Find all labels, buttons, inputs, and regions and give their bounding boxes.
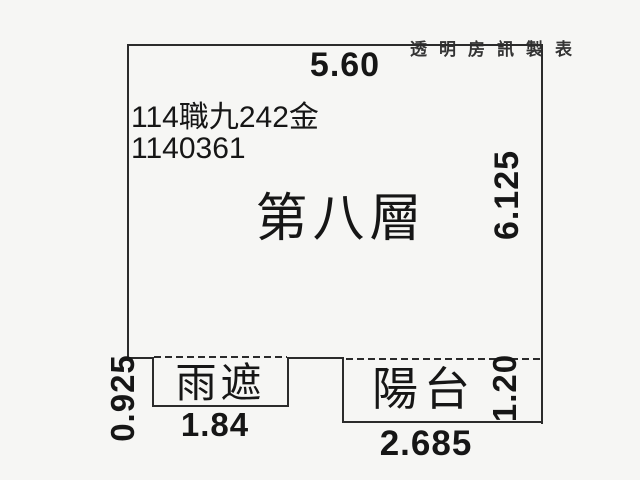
dimension-balcony-width: 2.685 (366, 424, 486, 464)
dimension-canopy-depth: 0.925 (104, 338, 138, 458)
watermark-text: 透明房訊製表 (410, 35, 584, 60)
dimension-right-height: 6.125 (488, 135, 522, 255)
plan-outline-right (541, 44, 543, 424)
dimension-top-width: 5.60 (295, 46, 395, 85)
canopy-right-line (287, 357, 289, 407)
canopy-label: 雨遮 (154, 361, 287, 405)
notch-connector-line (289, 357, 344, 359)
canopy-dashed-top-line (154, 356, 287, 358)
balcony-left-line (342, 357, 344, 423)
floor-plan-page: 透明房訊製表 5.60 114職九242金 1140361 第八層 6.125 … (0, 0, 640, 480)
floor-label: 第八層 (241, 176, 441, 251)
dimension-canopy-width: 1.84 (165, 406, 265, 444)
dimension-balcony-depth: 1.20 (486, 338, 520, 438)
serial-number-text: 1140361 (131, 133, 319, 164)
case-number-text: 114職九242金 (131, 102, 319, 133)
balcony-label: 陽台 (354, 363, 494, 415)
case-id-block: 114職九242金 1140361 (131, 102, 319, 164)
plan-outline-left (127, 44, 129, 359)
